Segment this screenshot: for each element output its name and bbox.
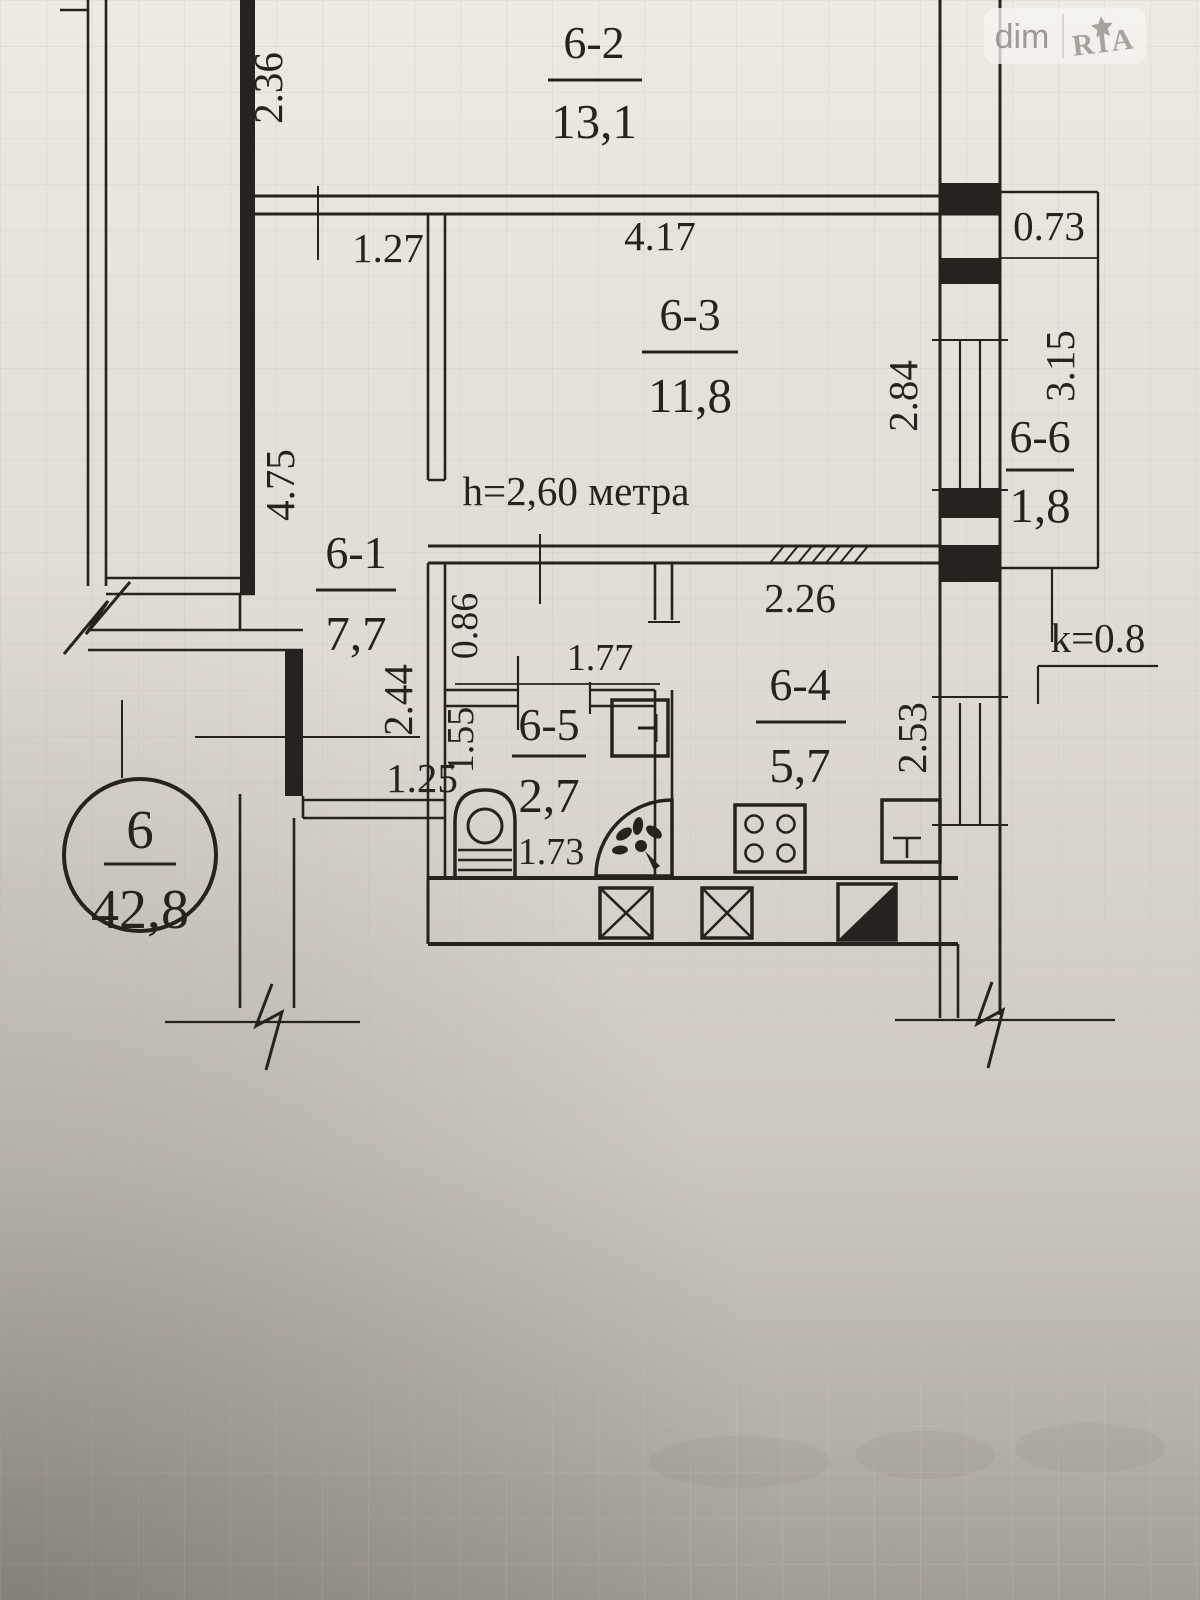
balcony-coefficient: k=0.8 <box>1051 615 1146 661</box>
ceiling-height-note: h=2,60 метра <box>463 468 690 514</box>
dim-0-73: 0.73 <box>1013 203 1085 249</box>
apartment-number: 6 <box>126 799 154 860</box>
floor-plan-photo: 6-2 13,1 6-3 11,8 6-1 7,7 6-4 5,7 6-5 2,… <box>0 0 1200 1600</box>
room-6-5-id: 6-5 <box>518 699 579 750</box>
room-6-3-area: 11,8 <box>648 368 732 423</box>
room-6-4-id: 6-4 <box>769 659 830 710</box>
floor-plan-drawing: 6-2 13,1 6-3 11,8 6-1 7,7 6-4 5,7 6-5 2,… <box>0 0 1200 1600</box>
watermark: dim RIA <box>984 8 1146 64</box>
room-6-3-id: 6-3 <box>659 289 720 340</box>
dim-1-27: 1.27 <box>352 225 424 271</box>
dim-2-26: 2.26 <box>764 575 836 621</box>
room-6-2-id: 6-2 <box>563 17 624 68</box>
dim-1-73: 1.73 <box>518 831 585 873</box>
dim-1-77: 1.77 <box>567 637 634 679</box>
room-6-1-id: 6-1 <box>325 527 386 578</box>
dim-2-36: 2.36 <box>245 52 291 124</box>
apartment-total-area: 42,8 <box>91 879 189 941</box>
dim-2-84: 2.84 <box>880 360 926 432</box>
room-6-4-area: 5,7 <box>769 738 830 793</box>
dim-0-86: 0.86 <box>444 593 486 660</box>
room-6-1-area: 7,7 <box>325 606 386 661</box>
dim-4-17: 4.17 <box>624 213 696 259</box>
room-6-6-area: 1,8 <box>1009 478 1070 533</box>
room-6-2-area: 13,1 <box>551 94 637 149</box>
dim-3-15: 3.15 <box>1037 330 1083 402</box>
dim-2-44: 2.44 <box>375 664 421 736</box>
dim-2-53: 2.53 <box>889 702 935 774</box>
watermark-dim-text: dim <box>995 18 1050 56</box>
room-6-5-area: 2,7 <box>518 768 579 823</box>
room-6-6-id: 6-6 <box>1009 411 1070 462</box>
dim-4-75: 4.75 <box>257 449 303 521</box>
dim-1-55: 1.55 <box>440 707 482 774</box>
